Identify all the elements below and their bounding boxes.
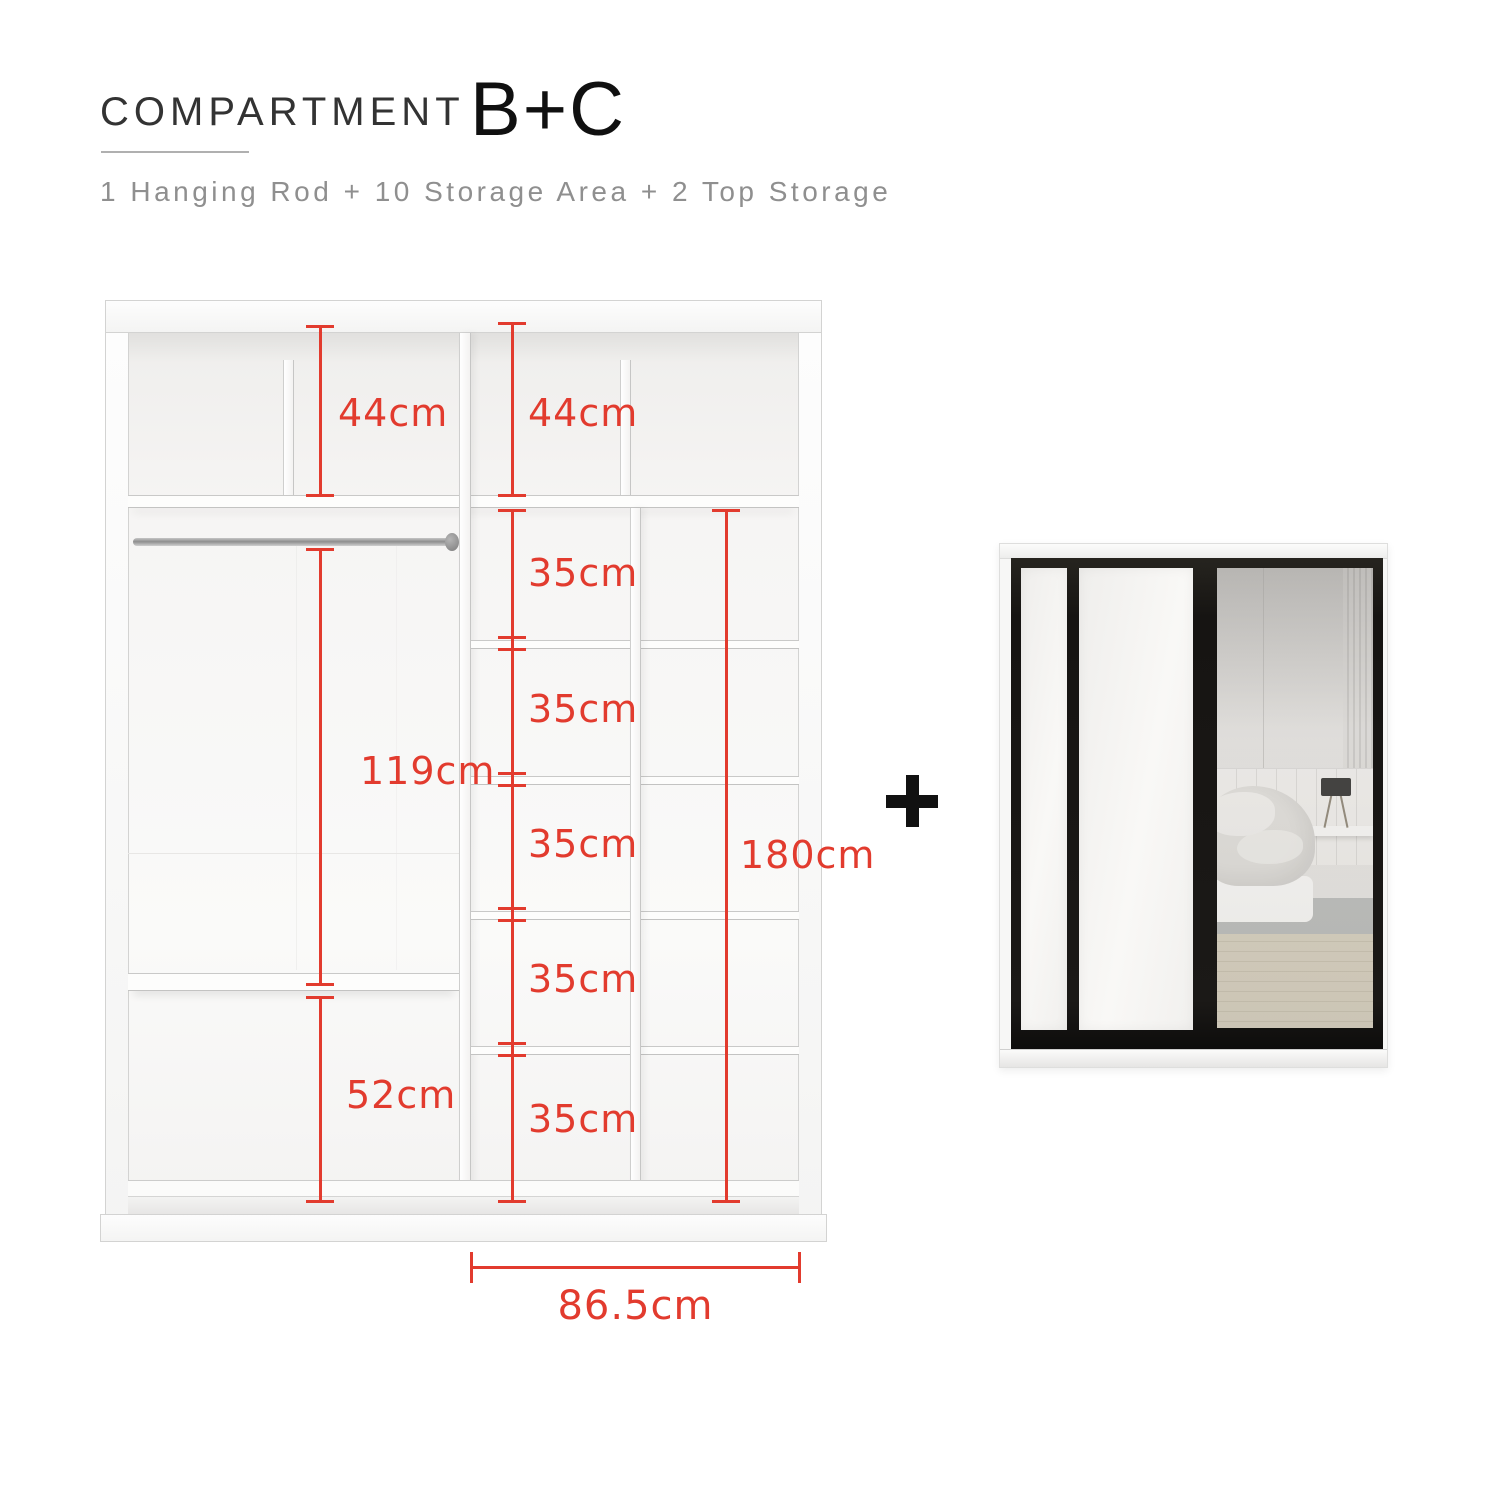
dim-line-180 [725,509,728,1203]
bottom-track [128,1196,799,1214]
plus-icon [880,769,944,833]
dim-label-44-left: 44cm [338,391,448,435]
dim-tick [498,494,526,497]
dim-tick [306,1200,334,1203]
dim-tick [798,1252,801,1283]
dim-tick [306,325,334,328]
left-stile [105,332,129,1241]
back-seam [296,546,297,970]
wardrobe-photo [999,543,1388,1068]
dim-tick [498,636,526,639]
dim-tick [498,907,526,910]
dim-label-35-5: 35cm [528,1097,638,1141]
left-door-wide-panel [1079,568,1193,1030]
dim-tick [498,648,526,651]
dim-tick [306,983,334,986]
right-stile [798,332,822,1241]
mirror-tint [1217,568,1373,1028]
title-underline [101,151,249,153]
dim-line-44-left [319,325,322,497]
dim-line-119 [319,548,322,986]
dim-line-52 [319,996,322,1203]
dim-tick [712,509,740,512]
dim-tick [498,784,526,787]
dim-tick [498,322,526,325]
dim-tick [712,1200,740,1203]
dim-tick [306,548,334,551]
dim-tick [306,996,334,999]
product-info-page: COMPARTMENT B+C 1 Hanging Rod + 10 Stora… [0,0,1500,1500]
dim-label-86-5: 86.5cm [470,1283,801,1329]
dim-tick [498,509,526,512]
dim-tick [498,772,526,775]
dim-line-86-5 [470,1266,801,1269]
dim-label-180: 180cm [740,833,875,877]
mirror-door [1217,568,1373,1028]
dim-tick [498,919,526,922]
top-rail [105,300,822,333]
dim-tick [306,494,334,497]
top-storage-divider-left [283,360,294,496]
variant-title: B+C [470,66,626,153]
photo-plinth [1000,1049,1387,1067]
sliding-door-frame [1011,558,1383,1050]
dim-label-52: 52cm [346,1073,456,1117]
dim-label-35-2: 35cm [528,687,638,731]
dim-label-35-1: 35cm [528,551,638,595]
dim-line-35-column [511,509,514,1203]
left-shelf [128,973,459,991]
dim-tick [498,1054,526,1057]
dim-line-44-right [511,322,514,497]
dim-tick [470,1252,473,1283]
dim-label-35-3: 35cm [528,822,638,866]
left-door-narrow-panel [1021,568,1067,1030]
back-seam [128,853,459,854]
dim-tick [498,1042,526,1045]
dim-label-35-4: 35cm [528,957,638,1001]
page-title: COMPARTMENT [100,90,465,135]
interior-floor [128,1180,799,1196]
dim-tick [498,1200,526,1203]
page-subtitle: 1 Hanging Rod + 10 Storage Area + 2 Top … [100,176,891,208]
dim-label-44-right: 44cm [528,391,638,435]
base-plinth [100,1214,827,1242]
photo-top-rail [1000,544,1387,559]
hanging-rod-bracket [445,533,459,551]
hanging-rod [133,538,453,546]
dim-label-119: 119cm [360,749,495,793]
